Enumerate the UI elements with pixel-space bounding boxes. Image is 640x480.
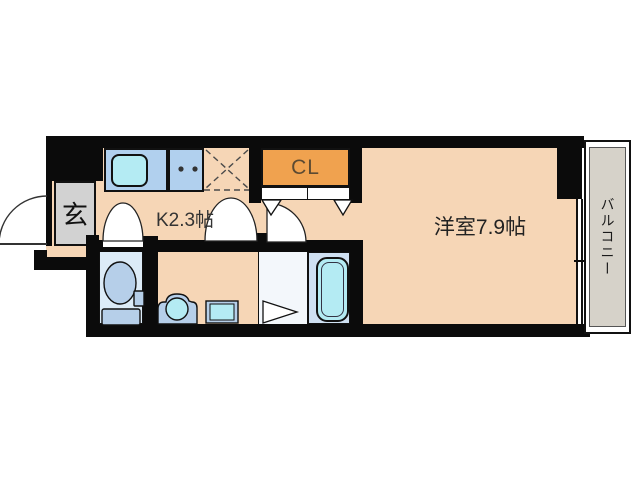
kitchen-label: K2.3帖 [140, 205, 230, 232]
balcony-floor: バルコニー [589, 147, 626, 327]
closet: CL [261, 148, 350, 187]
toilet-door-opening [103, 240, 143, 247]
closet-label: CL [291, 156, 320, 180]
wall-entrance-left [46, 181, 52, 246]
kitchen-counter-sink-unit [104, 148, 168, 192]
bathtub [316, 257, 349, 322]
wall-bottom [88, 324, 590, 337]
entrance-door-arc [0, 196, 47, 244]
exterior-notch [0, 270, 86, 350]
pillar-top-right [557, 136, 582, 199]
kitchen-counter-stove-unit [168, 148, 204, 192]
wall-door-post [249, 233, 267, 252]
wall-bath-east [350, 240, 363, 337]
wall-closet-left [249, 148, 261, 203]
closet-door-divider [307, 188, 308, 199]
pillar-top-left [46, 136, 103, 181]
wall-closet-right [350, 136, 362, 203]
bathtub-rim [321, 262, 344, 317]
toilet-room [99, 247, 143, 324]
balcony-label: バルコニー [598, 197, 618, 277]
closet-doors [261, 187, 350, 200]
bathroom [308, 252, 350, 324]
wall-top [46, 136, 584, 148]
entrance-label: 玄 [62, 195, 88, 232]
main-room-label: 洋室7.9帖 [400, 211, 560, 241]
wall-toilet-east [143, 236, 158, 324]
sink-basin [111, 154, 148, 187]
bathroom-entry [258, 252, 308, 324]
floor-plan: 玄 CL バルコニー [0, 0, 640, 480]
